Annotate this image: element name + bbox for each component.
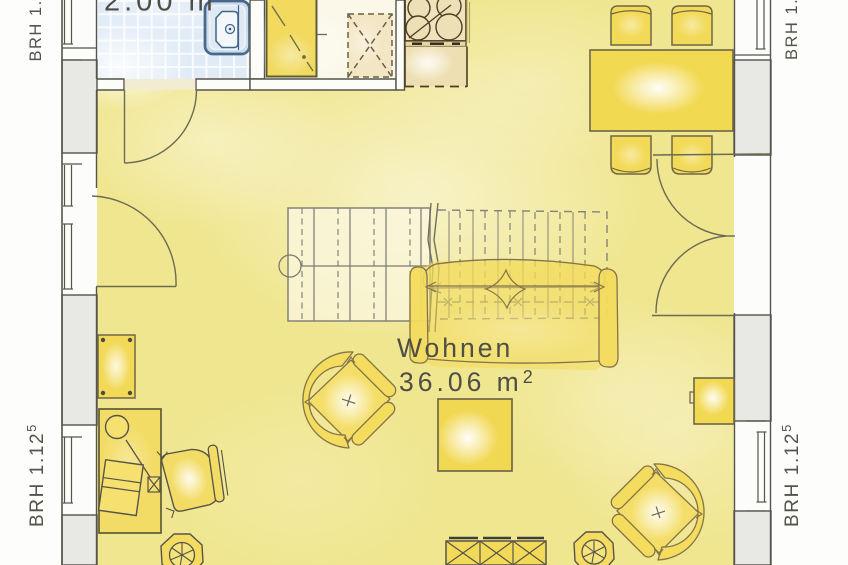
svg-text:BRH 1.: BRH 1. [27,0,45,62]
svg-text:BRH 1.125: BRH 1.125 [779,423,803,527]
svg-text:Wohnen: Wohnen [397,333,513,363]
svg-text:2.00 m: 2.00 m [104,0,217,18]
svg-text:BRH 1.: BRH 1. [783,0,801,60]
svg-text:36.06 m2: 36.06 m2 [399,367,537,397]
svg-text:BRH 1.125: BRH 1.125 [24,423,48,527]
